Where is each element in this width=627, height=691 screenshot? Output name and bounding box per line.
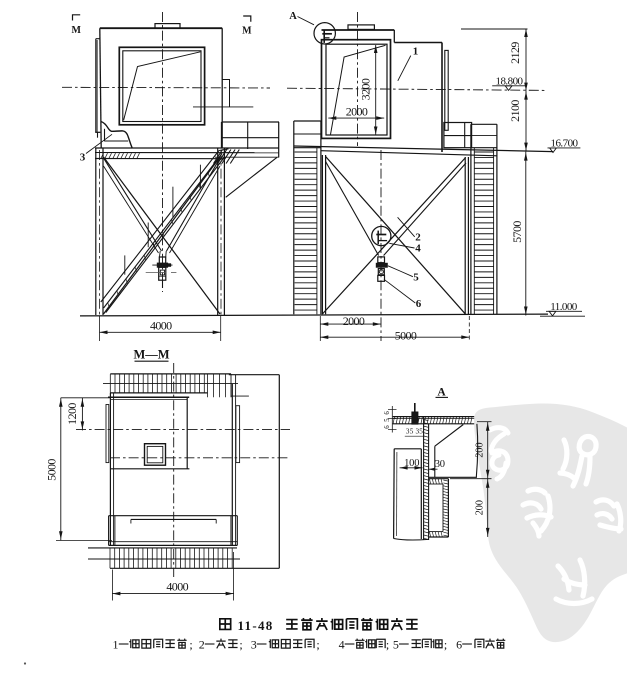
svg-text:6: 6 [456, 637, 462, 651]
svg-text:;: ; [444, 637, 447, 651]
svg-text:4: 4 [339, 637, 345, 651]
svg-text:6: 6 [416, 298, 422, 310]
svg-text:100: 100 [404, 458, 419, 469]
svg-text:3: 3 [80, 152, 86, 164]
svg-text:M—M: M—M [133, 348, 169, 362]
svg-text:5000: 5000 [395, 329, 417, 343]
svg-text:2100: 2100 [508, 100, 522, 122]
svg-text:A: A [289, 11, 297, 22]
svg-text:4000: 4000 [150, 318, 172, 332]
svg-text:M: M [242, 26, 252, 37]
svg-text:3: 3 [251, 637, 257, 651]
svg-text:2000: 2000 [346, 105, 368, 119]
svg-text:11-48: 11-48 [237, 618, 273, 633]
svg-text:200: 200 [475, 443, 486, 458]
svg-text:;: ; [316, 637, 319, 651]
svg-text:200: 200 [475, 500, 486, 515]
svg-text:A: A [437, 387, 446, 399]
svg-text:3200: 3200 [359, 78, 373, 100]
svg-text:4000: 4000 [166, 579, 188, 593]
svg-text:;: ; [386, 637, 389, 651]
svg-text:2129: 2129 [508, 42, 522, 64]
svg-text:1200: 1200 [65, 403, 79, 425]
svg-text:2000: 2000 [343, 314, 365, 328]
svg-text:5: 5 [413, 271, 419, 283]
svg-text:4: 4 [415, 243, 421, 255]
svg-text:35 35: 35 35 [406, 428, 423, 436]
svg-text:6 5 6: 6 5 6 [384, 410, 391, 429]
svg-text:5700: 5700 [510, 221, 524, 243]
svg-text:;: ; [189, 637, 192, 651]
svg-text:5: 5 [393, 637, 399, 651]
svg-text:;: ; [239, 637, 242, 651]
svg-text:30: 30 [435, 459, 445, 470]
svg-text:2: 2 [199, 637, 205, 651]
svg-text:M: M [71, 25, 81, 36]
svg-text:5000: 5000 [45, 459, 59, 481]
svg-text:1: 1 [113, 637, 119, 651]
svg-text:1: 1 [413, 46, 419, 58]
